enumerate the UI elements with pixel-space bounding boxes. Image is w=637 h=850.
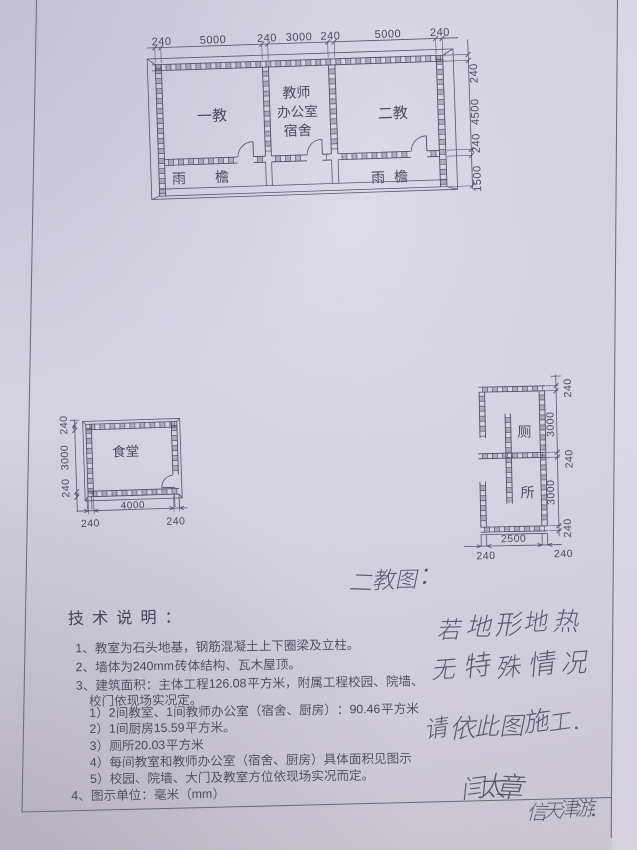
svg-text:5000: 5000 xyxy=(375,28,402,41)
svg-text:1: 1 xyxy=(89,706,96,720)
svg-text:126.08: 126.08 xyxy=(209,676,247,691)
svg-text:240: 240 xyxy=(562,378,574,397)
svg-text:5000: 5000 xyxy=(200,34,227,47)
svg-text:mm: mm xyxy=(192,787,213,801)
svg-text:240: 240 xyxy=(166,515,185,528)
svg-text:1500: 1500 xyxy=(471,165,484,192)
svg-text:15.59: 15.59 xyxy=(154,721,185,735)
svg-text:90.46: 90.46 xyxy=(349,702,380,716)
svg-text:4000: 4000 xyxy=(121,500,146,512)
svg-text:240: 240 xyxy=(563,449,575,468)
svg-text:240: 240 xyxy=(476,550,495,562)
svg-text:1: 1 xyxy=(75,641,82,655)
svg-text:4: 4 xyxy=(90,755,97,769)
svg-text:240: 240 xyxy=(320,30,340,43)
svg-text:240: 240 xyxy=(562,518,574,537)
svg-text:240: 240 xyxy=(58,415,71,434)
svg-text:240: 240 xyxy=(151,36,171,49)
svg-text:240: 240 xyxy=(430,26,450,39)
svg-text:240: 240 xyxy=(60,478,73,497)
svg-text:3: 3 xyxy=(76,679,83,693)
svg-text:3000: 3000 xyxy=(286,31,313,44)
svg-text:2: 2 xyxy=(89,722,96,736)
svg-text:240mm: 240mm xyxy=(133,659,174,674)
svg-text:2500: 2500 xyxy=(501,533,527,546)
svg-text:3000: 3000 xyxy=(545,479,558,505)
svg-text:1: 1 xyxy=(109,722,116,736)
svg-text:240: 240 xyxy=(470,133,483,153)
svg-text:2: 2 xyxy=(109,706,116,720)
svg-text:4500: 4500 xyxy=(469,98,482,125)
svg-text:1: 1 xyxy=(166,705,173,719)
svg-text:2: 2 xyxy=(75,660,82,674)
svg-text:240: 240 xyxy=(554,548,573,560)
svg-text:240: 240 xyxy=(81,517,100,530)
svg-text:240: 240 xyxy=(468,63,481,83)
svg-text:240: 240 xyxy=(257,32,277,45)
svg-text:3000: 3000 xyxy=(544,411,557,437)
svg-text:4: 4 xyxy=(71,789,78,803)
svg-text:3000: 3000 xyxy=(59,445,72,471)
svg-text:3: 3 xyxy=(90,739,97,753)
svg-text:20.03: 20.03 xyxy=(134,738,165,752)
svg-text:5: 5 xyxy=(90,772,97,786)
